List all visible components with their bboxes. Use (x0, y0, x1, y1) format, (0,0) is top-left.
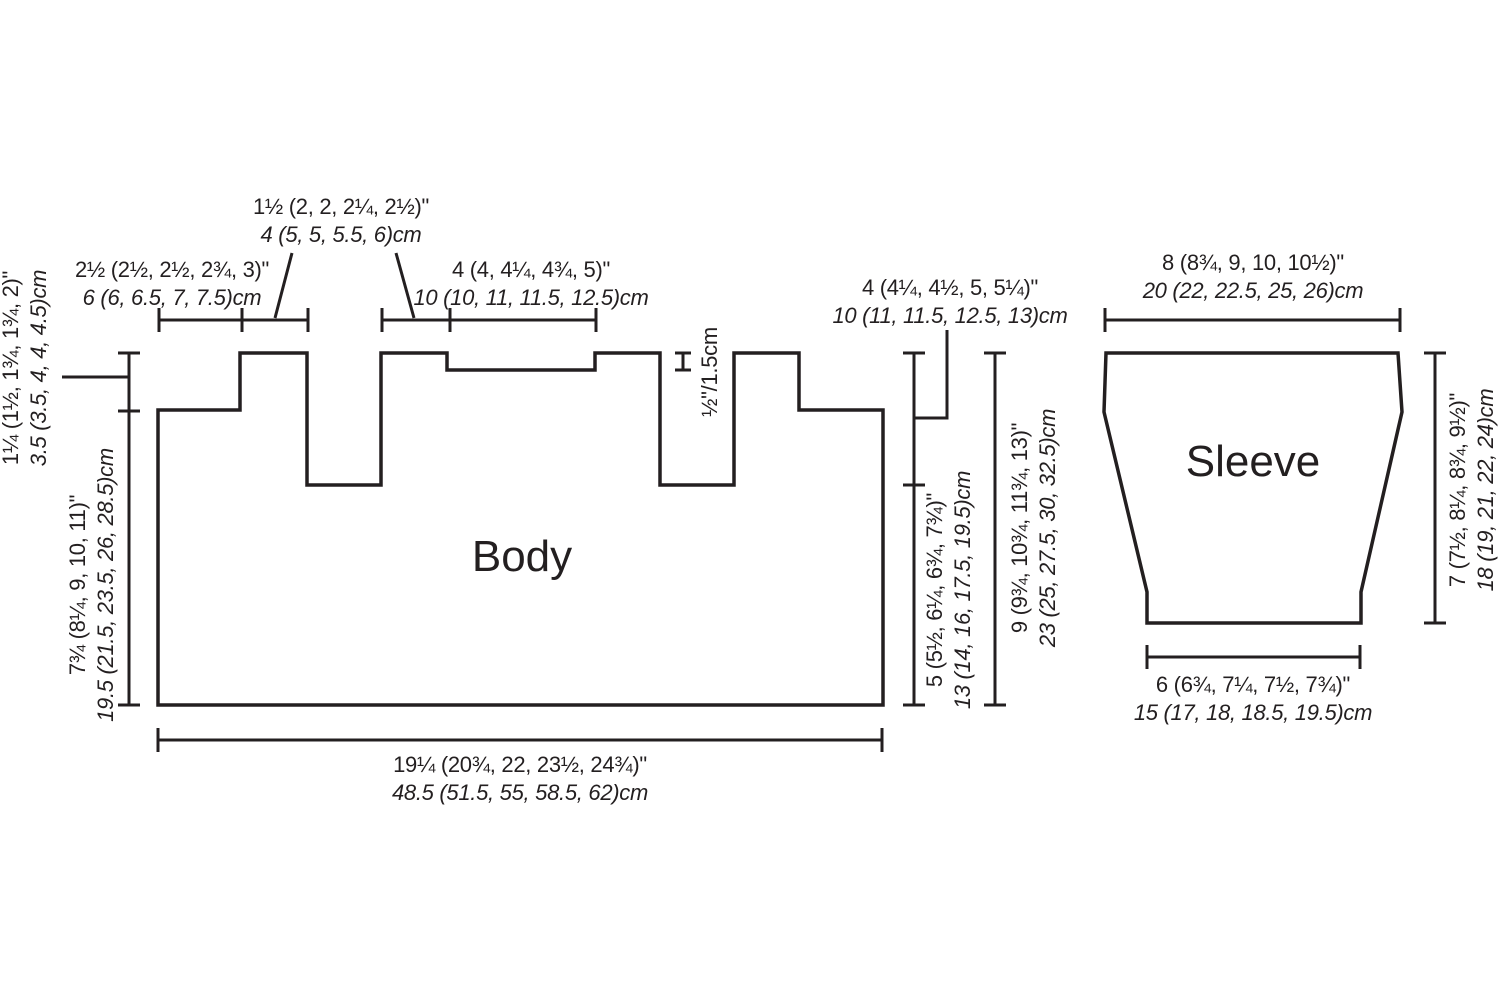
sleeve-outline (1104, 353, 1402, 623)
top-left-width-cm: 6 (6, 6.5, 7, 7.5)cm (75, 284, 269, 312)
dim-sleeve-top-width (1105, 308, 1400, 332)
dim-sleeve-cuff-width (1147, 645, 1360, 669)
dim-sleeve-length (1424, 353, 1446, 623)
body-title: Body (472, 535, 572, 579)
shoulder-drop-cm: 3.5 (3.5, 4, 4, 4.5)cm (25, 270, 53, 466)
shoulder-width-cm: 4 (5, 5, 5.5, 6)cm (253, 221, 429, 249)
top-right-width-inches: 4 (4, 4¼, 4¾, 5)" (413, 256, 648, 284)
side-total-cm: 23 (25, 27.5, 30, 32.5)cm (1034, 409, 1062, 647)
label-top-right-width: 4 (4, 4¼, 4¾, 5)" 10 (10, 11, 11.5, 12.5… (413, 256, 648, 312)
sleeve-title: Sleeve (1186, 440, 1321, 484)
label-hem-width: 19¼ (20¾, 22, 23½, 24¾)" 48.5 (51.5, 55,… (392, 751, 648, 807)
side-total-inches: 9 (9¾, 10¾, 11¾, 13)" (1006, 409, 1034, 647)
top-right-width-cm: 10 (10, 11, 11.5, 12.5)cm (413, 284, 648, 312)
body-outline (158, 353, 883, 705)
top-left-width-inches: 2½ (2½, 2½, 2¾, 3)" (75, 256, 269, 284)
label-below-armhole: 5 (5½, 6¼, 6¾, 7¾)" 13 (14, 16, 17.5, 19… (921, 471, 977, 709)
label-sleeve-top-width: 8 (8¾, 9, 10, 10½)" 20 (22, 22.5, 25, 26… (1143, 249, 1364, 305)
dim-body-side-total (984, 353, 1006, 705)
hem-width-inches: 19¼ (20¾, 22, 23½, 24¾)" (392, 751, 648, 779)
dim-neck-step (675, 353, 691, 370)
leader-shoulder-width (275, 253, 414, 318)
label-neck-step: ½"/1.5cm (696, 327, 724, 417)
leader-armhole-depth (914, 330, 947, 418)
label-sleeve-cuff-width: 6 (6¾, 7¼, 7½, 7¾)" 15 (17, 18, 18.5, 19… (1134, 671, 1372, 727)
below-armhole-cm: 13 (14, 16, 17.5, 19.5)cm (949, 471, 977, 709)
label-shoulder-width: 1½ (2, 2, 2¼, 2½)" 4 (5, 5, 5.5, 6)cm (253, 193, 429, 249)
left-length-inches: 7¾ (8¼, 9, 10, 11)" (64, 448, 92, 722)
label-armhole-depth: 4 (4¼, 4½, 5, 5¼)" 10 (11, 11.5, 12.5, 1… (832, 274, 1067, 330)
below-armhole-inches: 5 (5½, 6¼, 6¾, 7¾)" (921, 471, 949, 709)
armhole-depth-cm: 10 (11, 11.5, 12.5, 13)cm (832, 302, 1067, 330)
armhole-depth-inches: 4 (4¼, 4½, 5, 5¼)" (832, 274, 1067, 302)
label-shoulder-drop: 1¼ (1½, 1¾, 1¾, 2)" 3.5 (3.5, 4, 4, 4.5)… (0, 270, 53, 466)
dim-body-hem-width (158, 728, 882, 752)
sleeve-cuff-width-cm: 15 (17, 18, 18.5, 19.5)cm (1134, 699, 1372, 727)
sleeve-top-width-cm: 20 (22, 22.5, 25, 26)cm (1143, 277, 1364, 305)
knitting-schematic: 1½ (2, 2, 2¼, 2½)" 4 (5, 5, 5.5, 6)cm 2½… (0, 0, 1500, 1000)
sleeve-length-cm: 18 (19, 21, 22, 24)cm (1472, 389, 1500, 592)
label-side-total: 9 (9¾, 10¾, 11¾, 13)" 23 (25, 27.5, 30, … (1006, 409, 1062, 647)
shoulder-drop-inches: 1¼ (1½, 1¾, 1¾, 2)" (0, 270, 25, 466)
hem-width-cm: 48.5 (51.5, 55, 58.5, 62)cm (392, 779, 648, 807)
sleeve-cuff-width-inches: 6 (6¾, 7¼, 7½, 7¾)" (1134, 671, 1372, 699)
label-sleeve-length: 7 (7½, 8¼, 8¾, 9½)" 18 (19, 21, 22, 24)c… (1444, 389, 1500, 592)
sleeve-top-width-inches: 8 (8¾, 9, 10, 10½)" (1143, 249, 1364, 277)
sleeve-length-inches: 7 (7½, 8¼, 8¾, 9½)" (1444, 389, 1472, 592)
schematic-linework (0, 0, 1500, 1000)
left-length-cm: 19.5 (21.5, 23.5, 26, 28.5)cm (92, 448, 120, 722)
neck-step-value: ½"/1.5cm (696, 327, 724, 417)
shoulder-width-inches: 1½ (2, 2, 2¼, 2½)" (253, 193, 429, 221)
label-top-left-width: 2½ (2½, 2½, 2¾, 3)" 6 (6, 6.5, 7, 7.5)cm (75, 256, 269, 312)
label-left-length: 7¾ (8¼, 9, 10, 11)" 19.5 (21.5, 23.5, 26… (64, 448, 120, 722)
